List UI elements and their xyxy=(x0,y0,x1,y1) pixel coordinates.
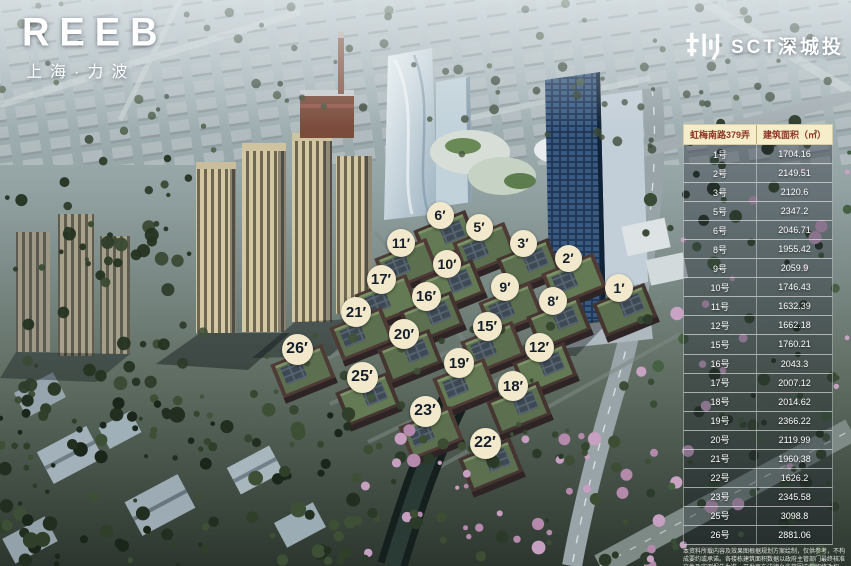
table-row: 8号1955.42 xyxy=(683,240,833,259)
table-row: 11号1632.39 xyxy=(683,297,833,316)
tree xyxy=(578,433,584,439)
tree xyxy=(376,443,383,450)
plot-marker: 22′ xyxy=(470,428,501,459)
table-cell-area: 1704.16 xyxy=(757,145,832,163)
tree xyxy=(466,534,471,539)
tree xyxy=(845,169,850,174)
tree xyxy=(252,438,261,447)
tree xyxy=(346,493,360,507)
table-cell-unit: 18号 xyxy=(684,393,757,411)
tree xyxy=(127,411,137,421)
tree xyxy=(2,520,13,531)
tree xyxy=(48,382,61,395)
plot-marker: 6′ xyxy=(427,202,454,229)
tree xyxy=(565,455,575,465)
tree xyxy=(202,523,210,531)
table-cell-unit: 11号 xyxy=(684,297,757,315)
area-table-header: 虹梅南路379弄 建筑面积（㎡） xyxy=(683,124,833,145)
area-table-body: 1号1704.162号2149.513号2120.65号2347.26号2046… xyxy=(683,145,833,545)
tree xyxy=(201,546,208,553)
tree xyxy=(305,510,315,520)
tree xyxy=(95,370,107,382)
tree xyxy=(114,376,128,390)
tree xyxy=(15,396,22,403)
tree xyxy=(558,454,563,459)
tree xyxy=(636,367,646,377)
table-row: 9号2059.9 xyxy=(683,259,833,278)
tree xyxy=(101,277,111,287)
tree xyxy=(611,462,622,473)
tree xyxy=(329,519,340,530)
tree xyxy=(63,202,72,211)
tree xyxy=(439,338,445,344)
table-cell-area: 2043.3 xyxy=(757,355,832,373)
tree xyxy=(187,252,192,257)
tree xyxy=(647,555,654,562)
tree xyxy=(476,551,486,561)
tree xyxy=(436,512,446,522)
tree xyxy=(95,450,108,463)
table-row: 1号1704.16 xyxy=(683,145,833,164)
tree xyxy=(22,395,34,407)
tree xyxy=(18,430,23,435)
tree xyxy=(136,506,150,520)
tree xyxy=(83,364,96,377)
tree xyxy=(162,409,172,419)
tree xyxy=(290,442,295,447)
table-cell-area: 1760.21 xyxy=(757,335,832,353)
developer-name: SCT深城投 xyxy=(731,32,844,59)
table-cell-unit: 21号 xyxy=(684,450,757,468)
tree xyxy=(143,526,151,534)
tree xyxy=(132,425,138,431)
tree xyxy=(13,267,18,272)
tree xyxy=(391,479,396,484)
tree xyxy=(648,143,653,148)
tree xyxy=(440,537,447,544)
table-row: 20号2119.99 xyxy=(683,431,833,450)
tree xyxy=(113,258,122,267)
tree xyxy=(128,557,134,563)
table-cell-unit: 6号 xyxy=(684,221,757,239)
table-row: 15号1760.21 xyxy=(683,335,833,354)
tree xyxy=(414,368,421,375)
table-cell-area: 1632.39 xyxy=(757,297,832,315)
table-cell-unit: 26号 xyxy=(684,526,757,544)
tree xyxy=(28,454,34,460)
tree xyxy=(612,551,619,558)
tree xyxy=(22,409,31,418)
tree xyxy=(312,544,326,558)
tree xyxy=(438,438,449,449)
tree xyxy=(513,536,520,543)
table-cell-unit: 9号 xyxy=(684,259,757,277)
tree xyxy=(337,556,345,564)
tree xyxy=(194,411,200,417)
tree xyxy=(588,432,601,445)
tree xyxy=(459,151,466,158)
tree xyxy=(161,283,174,296)
tree xyxy=(649,138,654,143)
tree xyxy=(60,314,64,318)
tree xyxy=(262,403,276,417)
tree xyxy=(248,471,263,486)
tree xyxy=(619,381,629,391)
table-row: 18号2014.62 xyxy=(683,393,833,412)
tree xyxy=(200,458,212,470)
tree xyxy=(64,227,70,233)
tree xyxy=(581,442,590,451)
tree xyxy=(100,525,113,538)
tree xyxy=(15,194,27,206)
table-cell-area: 2149.51 xyxy=(757,164,832,182)
tree xyxy=(647,545,656,554)
plot-marker: 5′ xyxy=(466,214,493,241)
tree xyxy=(23,356,33,366)
tree xyxy=(566,488,573,495)
tree xyxy=(95,434,107,446)
tree xyxy=(348,333,358,343)
tree xyxy=(85,257,89,261)
tree xyxy=(667,225,673,231)
tree xyxy=(845,335,850,340)
table-cell-unit: 20号 xyxy=(684,431,757,449)
tree xyxy=(613,136,623,146)
table-cell-area: 2345.58 xyxy=(757,488,832,506)
table-row: 12号1662.18 xyxy=(683,316,833,335)
tree xyxy=(155,252,169,266)
tree xyxy=(18,501,22,505)
tree xyxy=(24,378,37,391)
tree xyxy=(144,454,148,458)
tree xyxy=(99,157,108,166)
table-row: 6号2046.71 xyxy=(683,221,833,240)
tree xyxy=(147,236,157,246)
tree xyxy=(277,554,288,565)
table-cell-area: 2014.62 xyxy=(757,393,832,411)
table-row: 3号2120.6 xyxy=(683,183,833,202)
tree xyxy=(407,454,421,468)
disclaimer: 本资料所载内容及效果图根据规划方案绘制，仅供参考，不构成要约或承诺。各楼栋建筑面… xyxy=(683,548,849,566)
tree xyxy=(642,229,649,236)
tree xyxy=(410,516,423,529)
table-row: 26号2881.06 xyxy=(683,526,833,545)
table-cell-area: 2120.6 xyxy=(757,183,832,201)
tree xyxy=(101,236,114,249)
table-row: 17号2007.12 xyxy=(683,374,833,393)
tree xyxy=(209,517,219,527)
tree xyxy=(23,443,30,450)
plot-marker: 25′ xyxy=(347,362,378,393)
tree xyxy=(158,338,170,350)
tree xyxy=(264,353,270,359)
tree xyxy=(362,555,369,562)
table-cell-unit: 10号 xyxy=(684,278,757,296)
tree xyxy=(133,499,137,503)
tree xyxy=(117,540,129,552)
tree xyxy=(650,400,657,407)
tree xyxy=(617,487,629,499)
tree xyxy=(342,407,355,420)
tree xyxy=(45,490,50,495)
tree xyxy=(164,155,171,162)
tree xyxy=(198,446,203,451)
tree xyxy=(220,420,233,433)
tree xyxy=(583,485,591,493)
tree xyxy=(76,426,82,432)
plot-marker: 19′ xyxy=(444,348,474,378)
tree xyxy=(60,177,70,187)
table-cell-unit: 15号 xyxy=(684,335,757,353)
tree xyxy=(164,227,169,232)
tree xyxy=(334,429,342,437)
tree xyxy=(395,433,407,445)
tree xyxy=(247,511,259,523)
tree xyxy=(22,514,34,526)
tree xyxy=(522,435,530,443)
plot-marker: 21′ xyxy=(341,297,371,327)
tree xyxy=(546,540,551,545)
table-cell-area: 1626.2 xyxy=(757,469,832,487)
table-row: 25号3098.8 xyxy=(683,507,833,526)
plot-marker: 2′ xyxy=(555,245,582,272)
tree xyxy=(652,360,664,372)
table-row: 21号1960.38 xyxy=(683,450,833,469)
tree xyxy=(668,483,675,490)
tree xyxy=(161,180,169,188)
tree xyxy=(139,417,143,421)
table-header-road: 虹梅南路379弄 xyxy=(684,125,757,144)
tree xyxy=(321,459,331,469)
table-cell-unit: 12号 xyxy=(684,316,757,334)
table-row: 5号2347.2 xyxy=(683,202,833,221)
tree xyxy=(110,408,124,422)
table-cell-unit: 1号 xyxy=(684,145,757,163)
tree xyxy=(177,358,188,369)
tree xyxy=(198,542,202,546)
brand-logo: REEB 上海·力波 xyxy=(22,14,168,82)
plot-marker: 10′ xyxy=(433,250,461,278)
tree xyxy=(161,528,173,540)
tree xyxy=(270,533,276,539)
tree xyxy=(367,393,376,402)
tree xyxy=(317,470,324,477)
tree xyxy=(670,307,684,321)
tree xyxy=(392,458,401,467)
shencheng-city-glyph-icon xyxy=(684,26,722,64)
reeb-wordmark: REEB xyxy=(22,13,168,53)
tree xyxy=(410,510,418,518)
table-row: 19号2366.22 xyxy=(683,412,833,431)
tree xyxy=(59,249,64,254)
tree xyxy=(644,193,657,206)
tree xyxy=(835,376,840,381)
tree xyxy=(324,557,332,565)
tree xyxy=(55,554,60,559)
plot-marker: 3′ xyxy=(510,230,537,257)
tree xyxy=(623,519,628,524)
tree xyxy=(438,461,442,465)
table-row: 2号2149.51 xyxy=(683,164,833,183)
table-cell-unit: 23号 xyxy=(684,488,757,506)
tree xyxy=(532,449,542,459)
tree xyxy=(497,510,503,516)
plot-marker: 18′ xyxy=(498,371,528,401)
tree xyxy=(324,547,332,555)
tree xyxy=(327,412,333,418)
tree xyxy=(100,422,107,429)
tree xyxy=(291,422,305,436)
plot-marker: 1′ xyxy=(605,274,633,302)
tree xyxy=(114,238,128,252)
plot-marker: 26′ xyxy=(282,334,313,365)
tree xyxy=(204,438,211,445)
tree xyxy=(559,433,571,445)
tree xyxy=(171,255,183,267)
tree xyxy=(274,389,279,394)
tree xyxy=(89,492,98,501)
table-header-area: 建筑面积（㎡） xyxy=(757,125,832,144)
tree xyxy=(137,244,150,257)
tree xyxy=(67,439,78,450)
tree xyxy=(545,131,551,137)
tree xyxy=(132,378,141,387)
tree xyxy=(671,539,677,545)
tree xyxy=(51,463,56,468)
tree xyxy=(211,147,217,153)
tree xyxy=(516,422,521,427)
table-cell-unit: 17号 xyxy=(684,374,757,392)
tree xyxy=(150,427,157,434)
tree xyxy=(650,449,658,457)
tree xyxy=(552,431,559,438)
table-cell-area: 1955.42 xyxy=(757,240,832,258)
tree xyxy=(648,379,655,386)
plot-marker: 16′ xyxy=(412,282,441,311)
table-cell-area: 1960.38 xyxy=(757,450,832,468)
tree xyxy=(179,321,186,328)
plot-marker: 17′ xyxy=(367,265,396,294)
tree xyxy=(171,541,177,547)
tree xyxy=(546,322,555,331)
tree xyxy=(5,195,10,200)
tree xyxy=(290,502,306,518)
tree xyxy=(363,445,373,455)
tree xyxy=(463,470,471,478)
tree xyxy=(532,518,544,530)
tree xyxy=(404,424,416,436)
table-cell-area: 3098.8 xyxy=(757,507,832,525)
table-cell-area: 2366.22 xyxy=(757,412,832,430)
tree xyxy=(532,541,546,555)
tree xyxy=(530,378,534,382)
tree xyxy=(672,543,679,550)
table-cell-area: 2881.06 xyxy=(757,526,832,544)
table-cell-area: 2007.12 xyxy=(757,374,832,392)
table-cell-unit: 5号 xyxy=(684,202,757,220)
tree xyxy=(599,134,605,140)
tree xyxy=(85,135,94,144)
tree xyxy=(653,514,666,527)
tree xyxy=(117,337,131,351)
tree xyxy=(154,400,161,407)
tree xyxy=(210,421,215,426)
tree xyxy=(86,261,91,266)
tree xyxy=(464,484,469,489)
table-cell-area: 2347.2 xyxy=(757,202,832,220)
brand-subtitle: 上海·力波 xyxy=(22,58,168,82)
tree xyxy=(419,435,428,444)
tree xyxy=(35,532,50,547)
table-cell-unit: 16号 xyxy=(684,355,757,373)
plot-marker: 20′ xyxy=(389,319,419,349)
table-cell-unit: 2号 xyxy=(684,164,757,182)
tree xyxy=(154,221,160,227)
tree xyxy=(185,174,193,182)
tree xyxy=(475,524,483,532)
table-cell-unit: 8号 xyxy=(684,240,757,258)
aerial-rendering-poster: 6′5′3′2′1′11′10′9′8′17′16′15′12′21′20′19… xyxy=(0,0,851,566)
tree xyxy=(646,489,655,498)
plot-marker: 12′ xyxy=(525,333,554,362)
tree xyxy=(144,376,156,388)
table-cell-unit: 25号 xyxy=(684,507,757,525)
tree xyxy=(34,364,38,368)
tree xyxy=(172,455,178,461)
tree xyxy=(72,419,77,424)
tree xyxy=(11,443,18,450)
tree xyxy=(200,394,204,398)
tree xyxy=(196,494,202,500)
tree xyxy=(645,459,651,465)
table-cell-area: 1746.43 xyxy=(757,278,832,296)
tree xyxy=(279,466,290,477)
tree xyxy=(463,525,468,530)
tree xyxy=(334,531,345,542)
tree xyxy=(33,483,38,488)
tree xyxy=(39,264,46,271)
tree xyxy=(38,411,48,421)
plot-marker: 23′ xyxy=(410,396,441,427)
tree xyxy=(79,243,86,250)
tree xyxy=(198,327,208,337)
tree xyxy=(621,469,633,481)
tree xyxy=(510,432,514,436)
plot-marker: 11′ xyxy=(387,229,415,257)
table-row: 16号2043.3 xyxy=(683,355,833,374)
plot-marker: 8′ xyxy=(539,287,567,315)
tree xyxy=(145,186,153,194)
tree xyxy=(834,384,839,389)
tree xyxy=(565,428,570,433)
tree xyxy=(207,412,213,418)
tree xyxy=(590,493,602,505)
tree xyxy=(166,193,170,197)
tree xyxy=(250,390,258,398)
tree xyxy=(23,319,35,331)
tree xyxy=(352,473,361,482)
tree xyxy=(361,482,370,491)
tree xyxy=(458,442,466,450)
tree xyxy=(244,434,252,442)
tree xyxy=(104,256,113,265)
tree xyxy=(43,516,58,531)
tree xyxy=(113,397,125,409)
table-cell-area: 1662.18 xyxy=(757,316,832,334)
tree xyxy=(88,221,94,227)
tree xyxy=(545,519,549,523)
area-table: 虹梅南路379弄 建筑面积（㎡） 1号1704.162号2149.513号212… xyxy=(683,124,833,545)
